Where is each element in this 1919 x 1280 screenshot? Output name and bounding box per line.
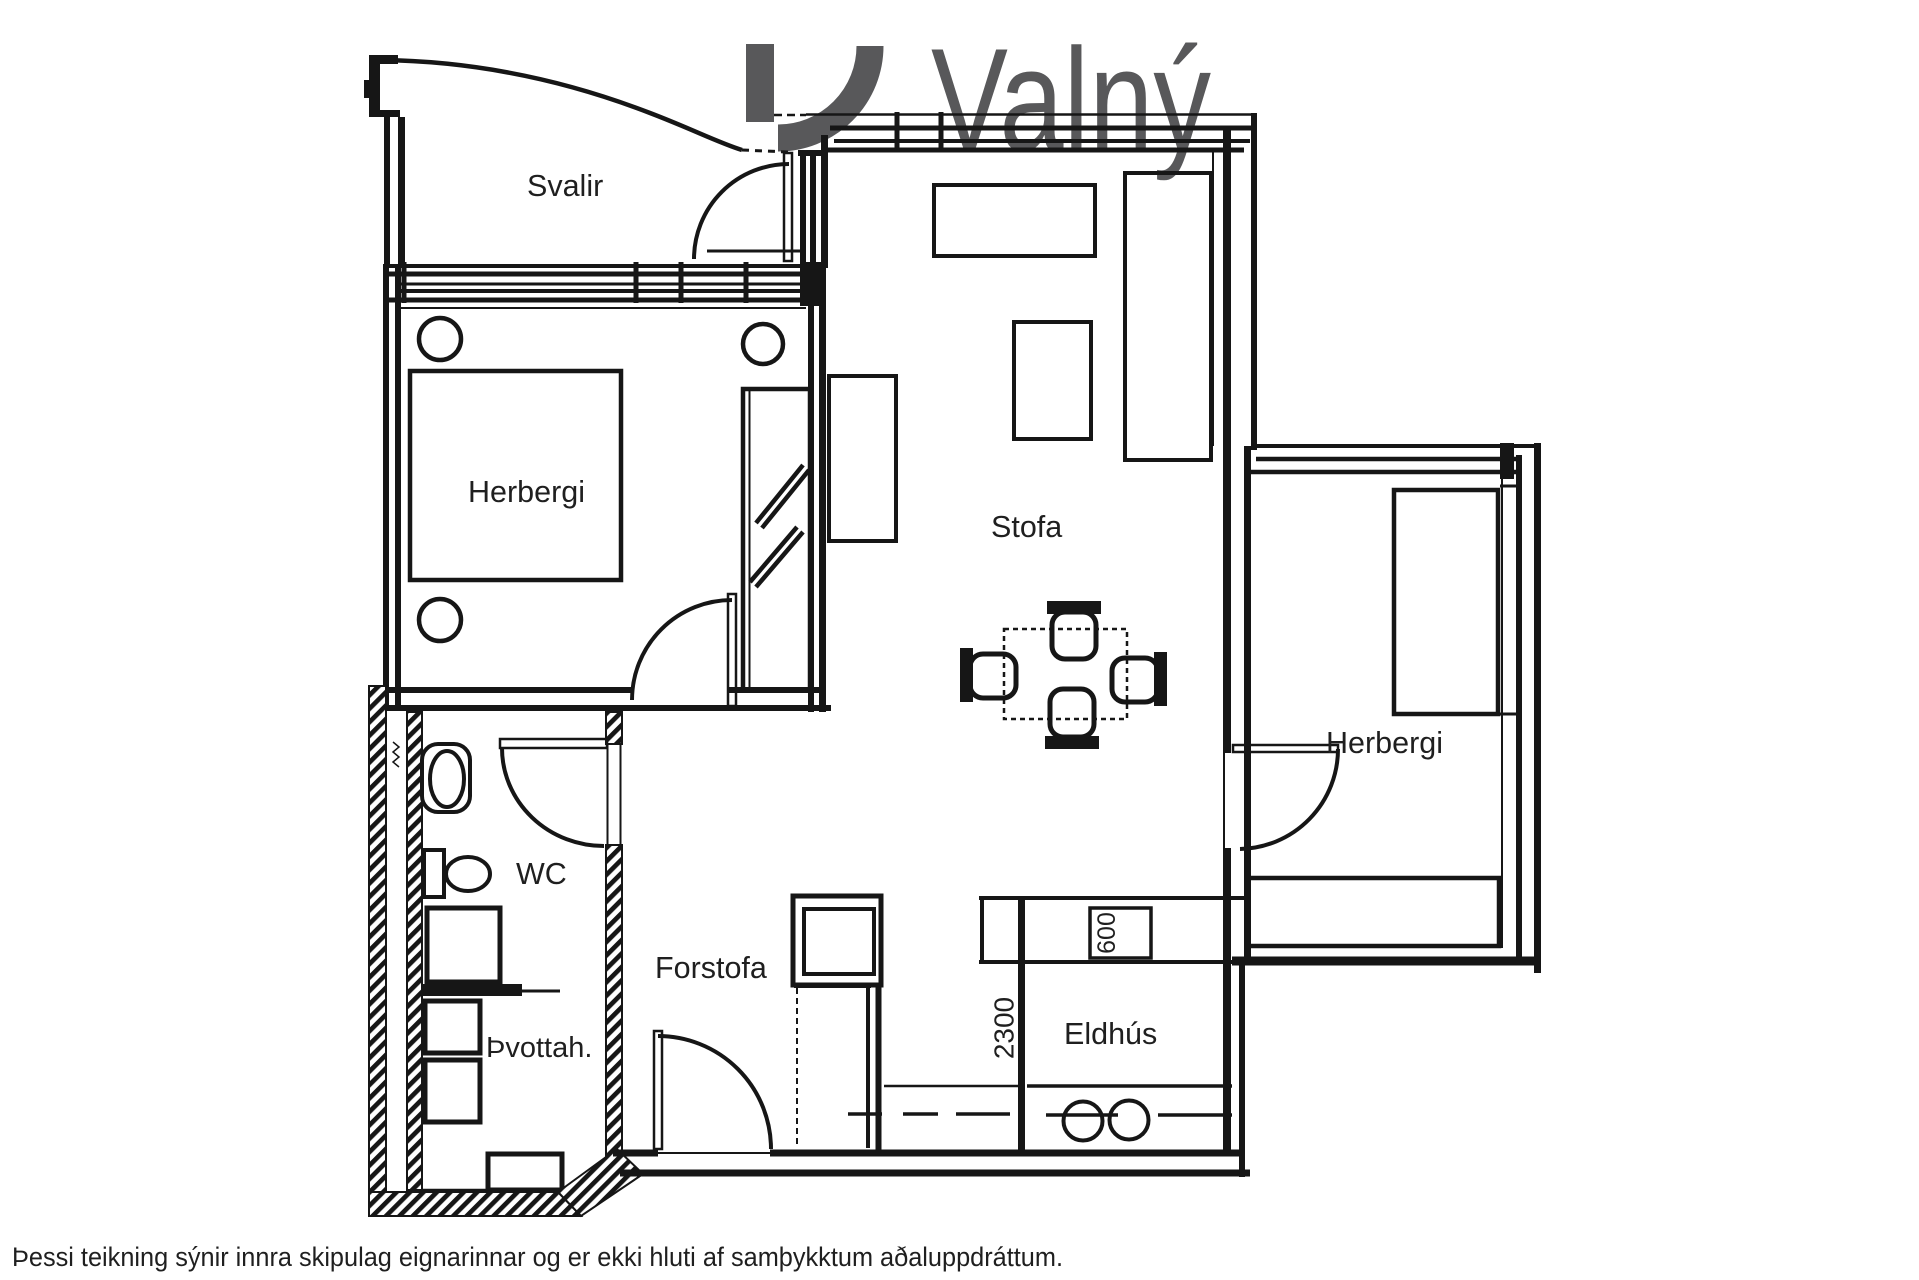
svg-text:Þvottah.: Þvottah. xyxy=(486,1032,592,1064)
svg-text:Herbergi: Herbergi xyxy=(1326,726,1443,760)
svg-text:WC: WC xyxy=(516,857,567,891)
svg-text:Eldhús: Eldhús xyxy=(1064,1017,1157,1051)
svg-text:Forstofa: Forstofa xyxy=(655,951,767,985)
svg-text:Valný: Valný xyxy=(931,18,1211,181)
svg-text:Stofa: Stofa xyxy=(991,510,1062,544)
svg-text:Svalir: Svalir xyxy=(527,169,603,203)
svg-text:600: 600 xyxy=(1093,912,1121,954)
svg-text:Herbergi: Herbergi xyxy=(468,475,585,509)
svg-text:2300: 2300 xyxy=(989,997,1020,1059)
svg-text:Þessi teikning sýnir innra ski: Þessi teikning sýnir innra skipulag eign… xyxy=(12,1242,1063,1272)
